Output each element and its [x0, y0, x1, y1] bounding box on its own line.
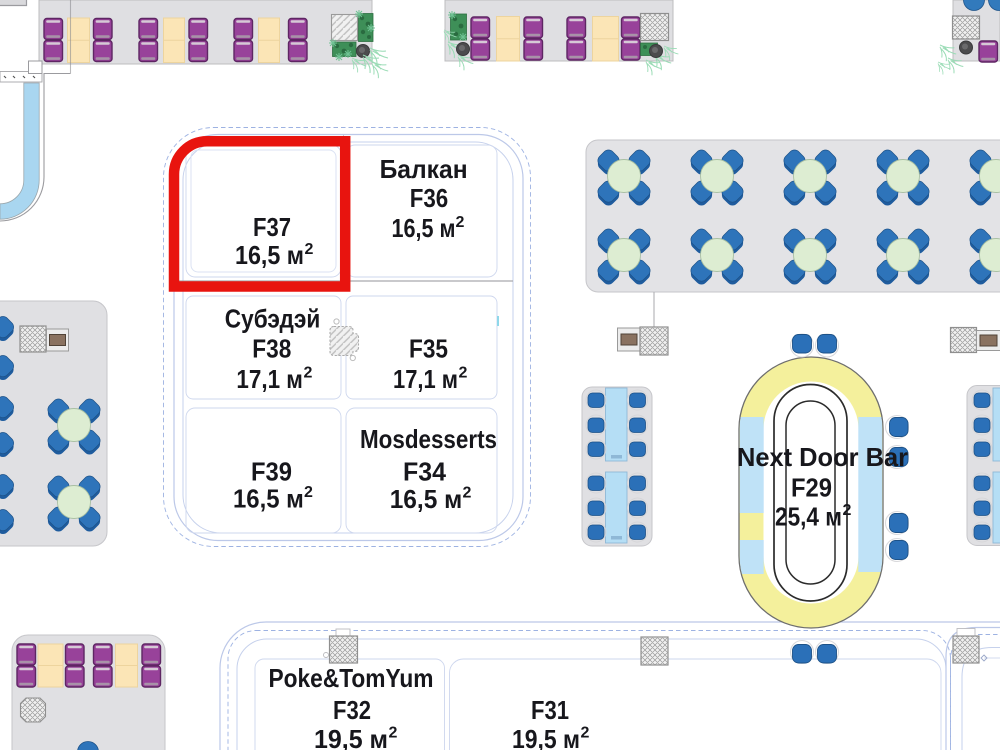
svg-text:16,5 м: 16,5 м — [235, 240, 304, 270]
svg-text:F38: F38 — [252, 333, 291, 363]
svg-text:2: 2 — [463, 485, 472, 502]
svg-text:F36: F36 — [410, 183, 449, 213]
svg-text:F31: F31 — [531, 695, 569, 725]
svg-text:Mosdesserts: Mosdesserts — [360, 424, 497, 454]
svg-text:19,5 м: 19,5 м — [512, 724, 580, 750]
svg-text:2: 2 — [456, 214, 465, 231]
svg-text:Next Door Bar: Next Door Bar — [737, 442, 908, 472]
svg-text:17,1 м: 17,1 м — [236, 364, 303, 394]
svg-text:2: 2 — [305, 241, 314, 258]
svg-text:17,1 м: 17,1 м — [393, 364, 458, 394]
svg-text:19,5 м: 19,5 м — [314, 724, 388, 750]
svg-text:16,5 м: 16,5 м — [390, 484, 463, 514]
svg-text:25,4 м: 25,4 м — [775, 502, 842, 532]
svg-text:2: 2 — [389, 725, 398, 742]
svg-text:F39: F39 — [251, 457, 292, 487]
svg-text:F34: F34 — [403, 457, 447, 487]
svg-text:2: 2 — [304, 484, 313, 501]
svg-text:16,5 м: 16,5 м — [233, 484, 304, 514]
svg-text:2: 2 — [843, 502, 852, 519]
svg-text:2: 2 — [581, 725, 590, 742]
svg-text:Poke&TomYum: Poke&TomYum — [269, 663, 434, 693]
svg-text:F37: F37 — [253, 212, 291, 242]
svg-text:16,5 м: 16,5 м — [392, 213, 456, 243]
svg-text:Субэдэй: Субэдэй — [225, 304, 320, 334]
svg-text:F29: F29 — [791, 473, 832, 503]
svg-text:2: 2 — [459, 365, 468, 382]
svg-text:F32: F32 — [333, 695, 371, 725]
svg-text:F35: F35 — [409, 333, 448, 363]
svg-text:2: 2 — [304, 365, 313, 382]
svg-text:Балкан: Балкан — [380, 154, 468, 184]
